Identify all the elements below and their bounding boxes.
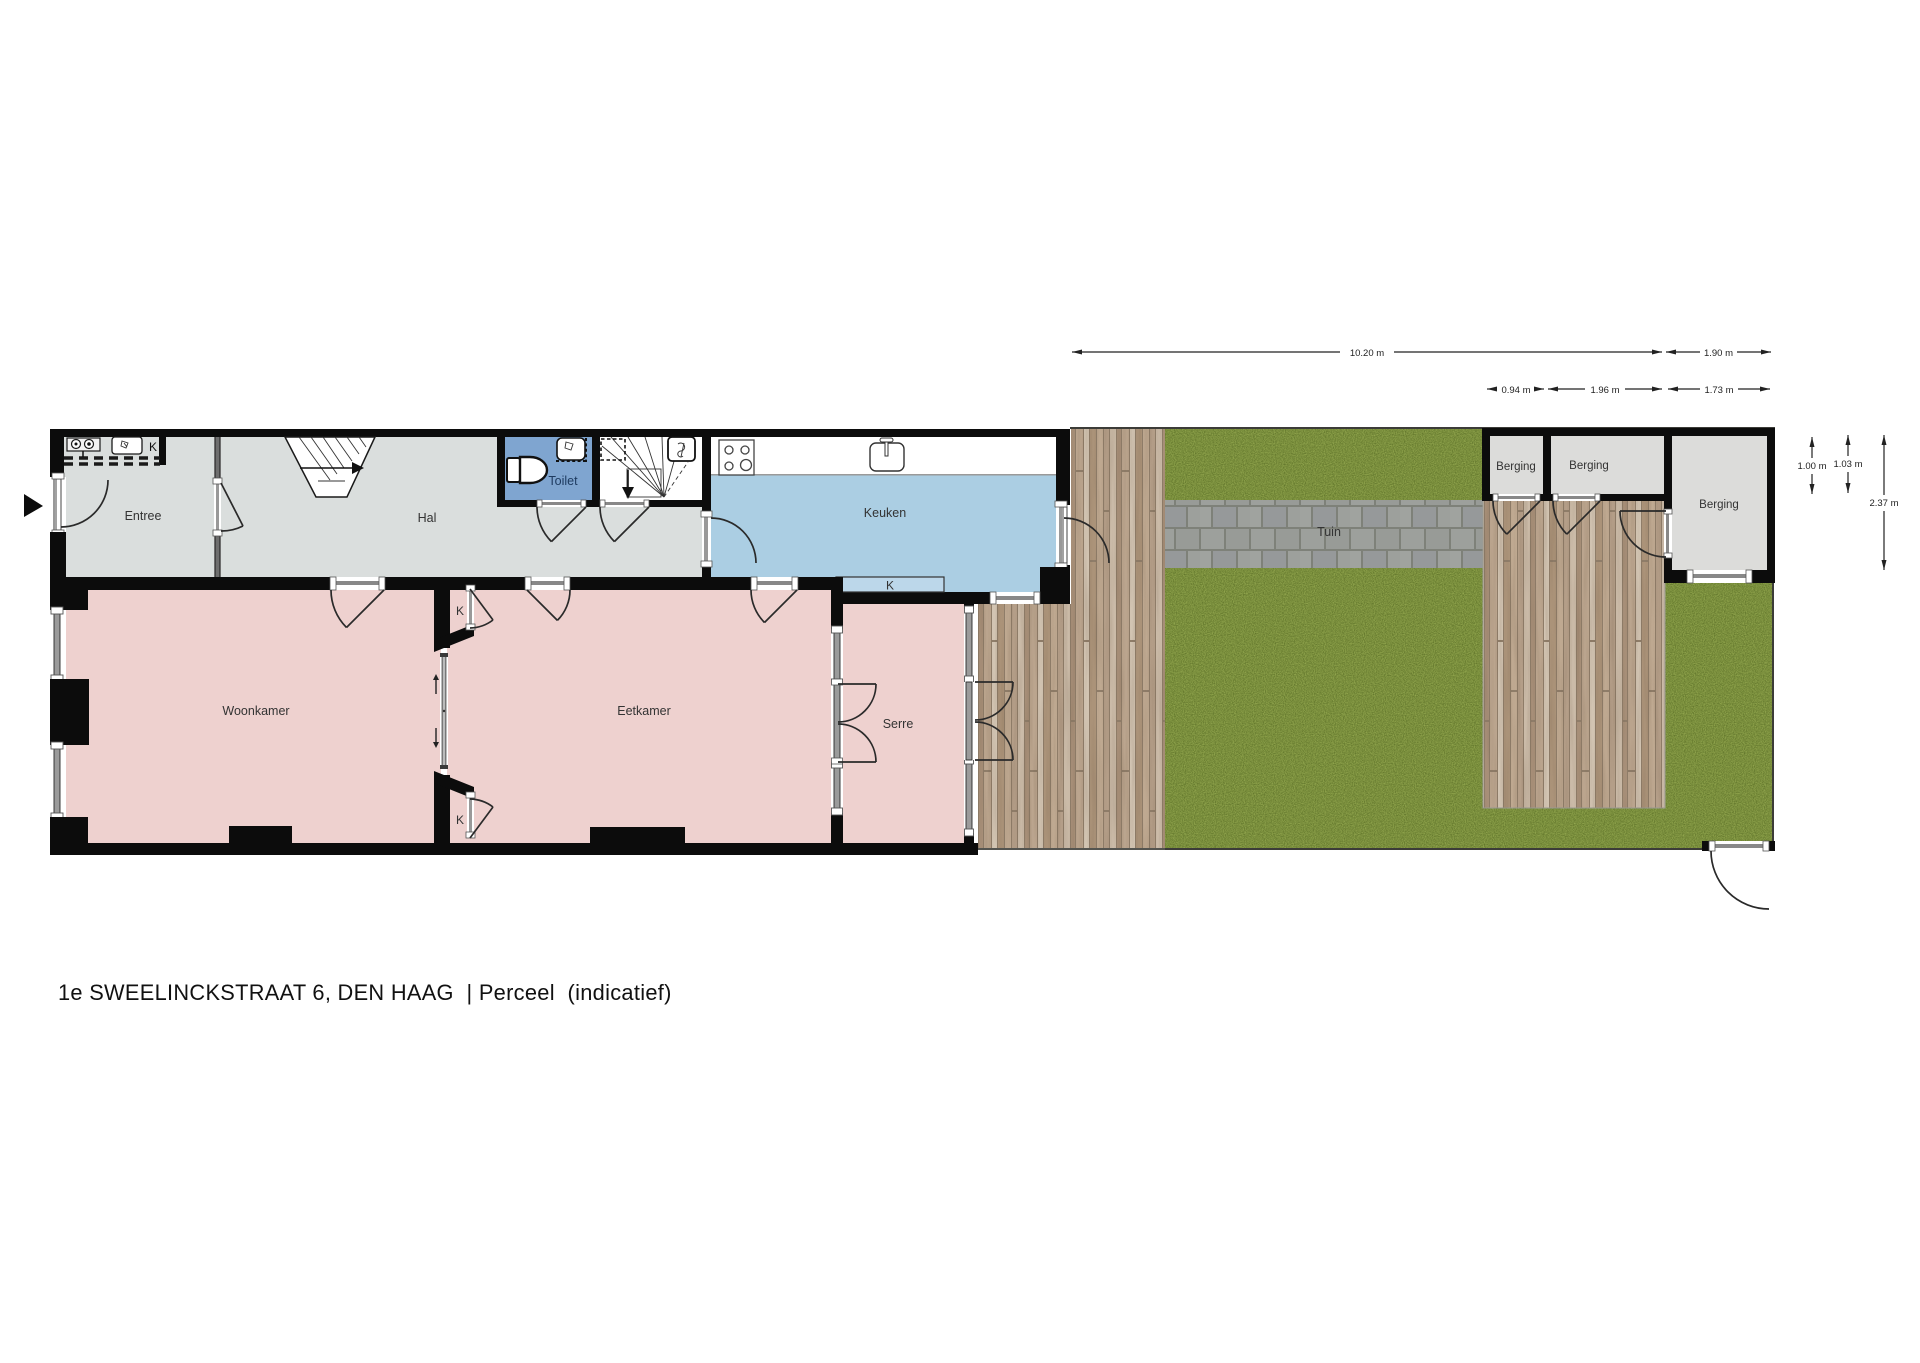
svg-text:Toilet: Toilet <box>548 474 578 488</box>
svg-text:Hal: Hal <box>418 511 437 525</box>
svg-text:K: K <box>456 604 464 618</box>
svg-text:1.96 m: 1.96 m <box>1590 385 1619 396</box>
svg-text:K: K <box>149 440 157 454</box>
svg-text:Eetkamer: Eetkamer <box>617 704 671 718</box>
svg-text:1.73 m: 1.73 m <box>1704 385 1733 396</box>
svg-text:1.00 m: 1.00 m <box>1797 461 1826 472</box>
svg-text:Berging: Berging <box>1496 461 1536 473</box>
svg-text:K: K <box>886 579 894 593</box>
svg-text:1.90 m: 1.90 m <box>1704 348 1733 359</box>
svg-text:10.20 m: 10.20 m <box>1350 348 1384 359</box>
svg-text:Serre: Serre <box>883 717 914 731</box>
svg-text:Berging: Berging <box>1699 499 1739 511</box>
svg-text:2.37 m: 2.37 m <box>1869 498 1898 509</box>
svg-text:Tuin: Tuin <box>1317 525 1341 539</box>
svg-text:1.03 m: 1.03 m <box>1833 459 1862 470</box>
svg-text:K: K <box>456 813 464 827</box>
svg-text:Keuken: Keuken <box>864 506 906 520</box>
svg-text:Berging: Berging <box>1569 460 1609 472</box>
svg-text:Woonkamer: Woonkamer <box>222 704 289 718</box>
svg-text:1e SWEELINCKSTRAAT 6, DEN HAAG: 1e SWEELINCKSTRAAT 6, DEN HAAG | Perceel… <box>58 980 672 1005</box>
svg-text:Entree: Entree <box>125 509 162 523</box>
svg-text:0.94 m: 0.94 m <box>1501 385 1530 396</box>
